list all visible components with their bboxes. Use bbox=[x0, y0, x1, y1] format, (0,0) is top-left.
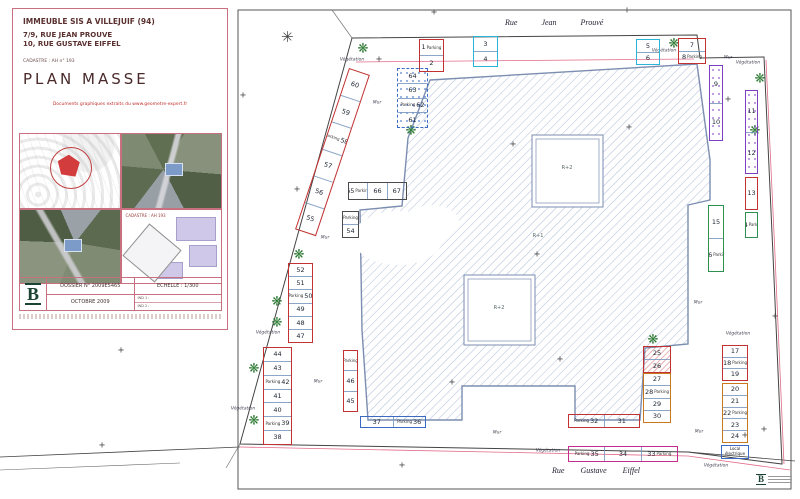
project-address-1: 7/9, RUE JEAN PROUVE bbox=[23, 31, 217, 40]
parcel-box-13: 13 bbox=[745, 177, 758, 210]
parcel-number: 62 bbox=[416, 102, 424, 109]
parcel-cell: 25 bbox=[644, 347, 670, 359]
parking-tag: Parking bbox=[687, 55, 702, 59]
parcel-number: 10 bbox=[712, 119, 720, 126]
parcel-cell: Local électrique bbox=[722, 446, 748, 458]
parcel-number: 13 bbox=[747, 190, 755, 197]
tree-icon: ❋ bbox=[358, 43, 369, 56]
parcel-cell: 31 bbox=[604, 415, 640, 427]
parcel-number: 67 bbox=[393, 188, 401, 195]
parcel-cell: 11 bbox=[746, 91, 757, 132]
parcel-number: 3 bbox=[483, 41, 487, 48]
parcel-cell: 13 bbox=[746, 178, 757, 209]
survey-cross-icon: + bbox=[431, 8, 437, 18]
plan-masse-sheet: Rue Jean Prouvé Rue Gustave Eiffel ✳ 1Pa… bbox=[0, 0, 800, 499]
survey-cross-icon: + bbox=[510, 140, 516, 150]
parcel-number: 47 bbox=[296, 333, 304, 340]
parcel-cell: 15 bbox=[709, 206, 723, 238]
parcel-box-25: 2526 bbox=[643, 346, 671, 373]
parcel-box-35: Parking353433Parking bbox=[568, 446, 678, 462]
parcel-cell: Parking36 bbox=[393, 417, 426, 427]
survey-cross-icon: + bbox=[399, 461, 405, 471]
surveyor-mini-logo: B bbox=[756, 471, 792, 488]
parcel-number: 24 bbox=[731, 433, 739, 440]
parcel-cell: Parking39 bbox=[264, 416, 291, 430]
parcel-cell: 17 bbox=[723, 346, 747, 357]
wall-label: Mur bbox=[694, 301, 703, 306]
parking-tag: Parking bbox=[355, 189, 367, 193]
street-name-rue-gustave-eiffel: Rue Gustave Eiffel bbox=[552, 466, 640, 475]
survey-cross-icon: + bbox=[99, 441, 105, 451]
parcel-cell: 21 bbox=[723, 395, 747, 407]
parcel-number: 35 bbox=[590, 451, 598, 458]
parcel-cell: 30 bbox=[644, 410, 670, 422]
parcel-cell: Parking32 bbox=[569, 415, 604, 427]
parking-tag: Parking bbox=[713, 253, 723, 257]
parcel-number: 28 bbox=[645, 389, 653, 396]
parcel-cell: Parking35 bbox=[569, 447, 604, 461]
parking-tag: Parking bbox=[654, 390, 669, 394]
parcel-number: 61 bbox=[408, 117, 416, 124]
survey-cross-icon: + bbox=[240, 91, 246, 101]
parking-tag: Parking bbox=[732, 361, 747, 365]
parcel-cell: 67 bbox=[387, 183, 406, 199]
parcel-cell: 52 bbox=[289, 264, 312, 276]
location-thumbnails: CADASTRE : AH 193 bbox=[19, 133, 222, 284]
parcel-number: 48 bbox=[296, 320, 304, 327]
parcel-number: 19 bbox=[731, 371, 739, 378]
parcel-cell: 45 bbox=[344, 391, 357, 411]
survey-cross-icon: + bbox=[624, 6, 630, 16]
survey-cross-icon: + bbox=[626, 123, 632, 133]
survey-cross-icon: + bbox=[725, 95, 731, 105]
parcel-number: 18 bbox=[723, 360, 731, 367]
thumbnail-aerial-photo-1 bbox=[121, 133, 223, 209]
building-level-label: R+2 bbox=[494, 305, 505, 311]
parcel-box-11: 1112 bbox=[745, 90, 758, 174]
thumbnail-aerial-photo-2 bbox=[19, 209, 121, 285]
parcel-cell: 14Parking bbox=[746, 213, 757, 237]
tree-icon: ❋ bbox=[249, 363, 260, 376]
revision-ind-2: IND 2 : bbox=[135, 303, 222, 310]
project-title: IMMEUBLE SIS A VILLEJUIF (94) bbox=[23, 17, 217, 26]
parcel-cell: 46 bbox=[344, 370, 357, 390]
logo-monogram: B bbox=[25, 283, 41, 305]
parcel-number: 26 bbox=[653, 363, 661, 370]
wall-label: Mur bbox=[724, 56, 733, 61]
title-block: IMMEUBLE SIS A VILLEJUIF (94) 7/9, RUE J… bbox=[12, 8, 228, 330]
parcel-box-14: 14Parking bbox=[745, 212, 758, 238]
parcel-cell: 40 bbox=[264, 402, 291, 416]
parcel-box-label: Local électrique bbox=[721, 445, 749, 459]
wall-label: Mur bbox=[321, 236, 330, 241]
parking-tag: Parking bbox=[325, 133, 340, 142]
parcel-number: 11 bbox=[747, 108, 755, 115]
parcel-number: 40 bbox=[273, 407, 281, 414]
date-value: OCTOBRE 2009 bbox=[47, 295, 135, 311]
logo-monogram: B bbox=[756, 474, 766, 485]
parcel-box-9: 910 bbox=[709, 65, 723, 141]
parcel-cell: 37 bbox=[361, 417, 393, 427]
parcel-number: 16 bbox=[709, 252, 712, 259]
parking-tag: Parking bbox=[289, 294, 303, 298]
parcel-number: 23 bbox=[731, 422, 739, 429]
parcel-box-17: 1718Parking19 bbox=[722, 345, 748, 381]
vegetation-label: Végétation bbox=[340, 58, 364, 63]
documents-note: Documents graphiques extraits du www.geo… bbox=[23, 102, 217, 107]
scale-value: ECHELLE : 1/300 bbox=[135, 278, 222, 294]
parcel-number: 21 bbox=[731, 398, 739, 405]
parcel-number: 49 bbox=[296, 306, 304, 313]
parcel-box-27: 2728Parking2930 bbox=[643, 373, 671, 423]
parcel-cell: Parking50 bbox=[289, 289, 312, 302]
parcel-number: 39 bbox=[281, 420, 289, 427]
parcel-number: 33 bbox=[647, 451, 655, 458]
title-block-footnote bbox=[19, 314, 222, 319]
parcel-cell: 54 bbox=[343, 224, 358, 237]
parcel-number: 55 bbox=[305, 214, 315, 223]
wall-label: Mur bbox=[695, 430, 704, 435]
tree-icon: ❋ bbox=[249, 415, 260, 428]
survey-cross-icon: + bbox=[557, 355, 563, 365]
parcel-number: 14 bbox=[746, 222, 748, 229]
dossier-number: DOSSIER N° 2009E5465 bbox=[47, 278, 135, 294]
logo-caption-lines bbox=[768, 476, 792, 483]
parcel-number: 31 bbox=[618, 418, 626, 425]
parcel-cell: 4 bbox=[474, 51, 497, 66]
parcel-cell: 65Parking bbox=[349, 183, 367, 199]
parcel-cell: 6 bbox=[637, 52, 659, 65]
parcel-cell: 43 bbox=[264, 361, 291, 375]
parcel-cell: Parking42 bbox=[264, 375, 291, 389]
parcel-cell: 66 bbox=[367, 183, 386, 199]
parcel-box-32: Parking3231 bbox=[568, 414, 640, 428]
parcel-box-64: 6463Parking6261 bbox=[397, 68, 428, 128]
building-level-label: R+2 bbox=[562, 165, 573, 171]
survey-cross-icon: + bbox=[761, 425, 767, 435]
tree-icon: ❋ bbox=[755, 73, 766, 86]
parcel-number: 8 bbox=[682, 54, 686, 61]
parcel-cell: 61 bbox=[398, 112, 427, 127]
parcel-cell: 48 bbox=[289, 316, 312, 329]
parking-tag: Parking bbox=[749, 223, 757, 227]
building-level-label: R+1 bbox=[533, 233, 544, 239]
parcel-box-46: Parking4645 bbox=[343, 350, 358, 412]
parcel-cell: 16Parking bbox=[709, 238, 723, 271]
parcel-cell: 7 bbox=[679, 39, 705, 51]
parcel-number: 38 bbox=[273, 434, 281, 441]
parcel-number: 5 bbox=[646, 43, 650, 50]
parcel-cell: 33Parking bbox=[641, 447, 677, 461]
survey-cross-icon: + bbox=[534, 250, 540, 260]
parcel-number: 60 bbox=[350, 81, 360, 90]
parcel-number: 41 bbox=[273, 393, 281, 400]
parcel-number: 32 bbox=[590, 418, 598, 425]
parcel-number: 56 bbox=[314, 188, 324, 197]
parking-tag: Parking bbox=[265, 422, 280, 426]
drawing-title: PLAN MASSE bbox=[23, 70, 217, 88]
parcel-number: 36 bbox=[413, 419, 421, 426]
parcel-number: 37 bbox=[373, 419, 381, 426]
revision-index: IND 1 : IND 2 : bbox=[135, 295, 222, 311]
wall-label: Mur bbox=[314, 380, 323, 385]
parcel-box-54: Parking54 bbox=[342, 211, 359, 238]
vegetation-label: Végétation bbox=[726, 332, 750, 337]
revision-ind-1: IND 1 : bbox=[135, 295, 222, 303]
project-address-2: 10, RUE GUSTAVE EIFFEL bbox=[23, 40, 217, 49]
parcel-cell: 24 bbox=[723, 430, 747, 442]
parcel-number: 45 bbox=[346, 398, 354, 405]
parcel-cell: 28Parking bbox=[644, 385, 670, 397]
parcel-cell: 29 bbox=[644, 398, 670, 410]
parcel-cell: 34 bbox=[604, 447, 640, 461]
parcel-cell: Parking bbox=[343, 212, 358, 224]
parcel-box-52: 5251Parking50494847 bbox=[288, 263, 313, 343]
parcel-number: 59 bbox=[341, 108, 351, 117]
parcel-number: 4 bbox=[483, 56, 487, 63]
parcel-cell: 49 bbox=[289, 303, 312, 316]
parcel-box-7: 78Parking bbox=[678, 38, 706, 64]
street-name-rue-jean-prouve: Rue Jean Prouvé bbox=[505, 18, 603, 27]
parcel-box-37: 37Parking36 bbox=[360, 416, 426, 428]
parcel-number: 6 bbox=[646, 55, 650, 62]
plan-building-shape bbox=[189, 245, 217, 268]
parking-tag: Parking bbox=[574, 419, 589, 423]
parking-tag: Parking bbox=[657, 452, 672, 456]
survey-cross-icon: + bbox=[376, 55, 382, 65]
parcel-number: 22 bbox=[723, 410, 731, 417]
parcel-cell: 22Parking bbox=[723, 407, 747, 419]
survey-cross-icon: + bbox=[294, 185, 300, 195]
parcel-cell: 26 bbox=[644, 359, 670, 372]
vegetation-label: Végétation bbox=[536, 449, 560, 454]
parcel-box-3: 34 bbox=[473, 36, 498, 67]
parcel-cell: 12 bbox=[746, 132, 757, 174]
parcel-cell: 9 bbox=[710, 66, 722, 103]
parcel-number: 46 bbox=[346, 378, 354, 385]
parking-tag: Parking bbox=[732, 411, 747, 415]
parcel-cell: 44 bbox=[264, 348, 291, 361]
parking-tag: Parking bbox=[343, 216, 358, 220]
parcel-cell: 38 bbox=[264, 430, 291, 444]
parking-tag: Parking bbox=[344, 359, 357, 363]
aerial-building-roof bbox=[165, 163, 183, 176]
wall-label: Mur bbox=[373, 101, 382, 106]
vegetation-label: Végétation bbox=[704, 464, 728, 469]
tree-icon: ❋ bbox=[294, 249, 305, 262]
parcel-number: 57 bbox=[323, 161, 333, 170]
parcel-number: 63 bbox=[408, 87, 416, 94]
parcel-cell: 20 bbox=[723, 384, 747, 395]
parcel-number: 34 bbox=[619, 451, 627, 458]
parcel-cell: 1Parking bbox=[420, 40, 443, 55]
parcel-number: 44 bbox=[273, 351, 281, 358]
parcel-cell: 19 bbox=[723, 368, 747, 380]
parcel-number: 25 bbox=[653, 350, 661, 357]
wall-label: Mur bbox=[493, 431, 502, 436]
survey-cross-icon: + bbox=[772, 312, 778, 322]
title-block-header: IMMEUBLE SIS A VILLEJUIF (94) 7/9, RUE J… bbox=[13, 9, 227, 107]
parcel-number: 7 bbox=[690, 42, 694, 49]
parking-tag: Parking bbox=[400, 103, 415, 107]
tree-icon: ❋ bbox=[272, 317, 283, 330]
parcel-cell: 18Parking bbox=[723, 357, 747, 369]
parcel-box-44: 4443Parking424140Parking3938 bbox=[263, 347, 292, 445]
parcel-cell: 8Parking bbox=[679, 51, 705, 64]
parcel-cell: Parking62 bbox=[398, 98, 427, 113]
parcel-number: 65 bbox=[349, 188, 354, 195]
parcel-number: 27 bbox=[653, 376, 661, 383]
parcel-cell: Parking bbox=[344, 351, 357, 370]
parcel-cell: 41 bbox=[264, 389, 291, 403]
parcel-number: 42 bbox=[281, 379, 289, 386]
north-compass-icon: ✳ bbox=[281, 30, 294, 45]
parcel-cell: 63 bbox=[398, 83, 427, 98]
surveyor-logo: B bbox=[20, 278, 47, 310]
aerial-building-roof bbox=[64, 239, 82, 252]
parcel-number: 12 bbox=[747, 150, 755, 157]
parcel-number: 64 bbox=[408, 73, 416, 80]
parcel-box-65: 65Parking6667 bbox=[348, 182, 407, 200]
parcel-cell: 3 bbox=[474, 37, 497, 51]
parcel-number: 1 bbox=[422, 44, 426, 51]
parcel-cell: 5 bbox=[637, 40, 659, 52]
parcel-number: 17 bbox=[731, 348, 739, 355]
parking-tag: Parking bbox=[265, 380, 280, 384]
tree-icon: ❋ bbox=[648, 334, 659, 347]
vegetation-label: Végétation bbox=[736, 61, 760, 66]
parcel-number: 54 bbox=[346, 228, 354, 235]
parcel-number: 51 bbox=[296, 280, 304, 287]
parcel-cell: 64 bbox=[398, 69, 427, 83]
parcel-number: 66 bbox=[373, 188, 381, 195]
parcel-number: 2 bbox=[429, 60, 433, 67]
thumbnail-caption: CADASTRE : AH 193 bbox=[126, 213, 166, 218]
parcel-box-20: 202122Parking2324 bbox=[722, 383, 748, 443]
parking-tag: Parking bbox=[575, 452, 590, 456]
parking-tag: Parking bbox=[427, 46, 442, 50]
parcel-number: 9 bbox=[714, 81, 718, 88]
parcel-number: 52 bbox=[296, 267, 304, 274]
parcel-cell: 23 bbox=[723, 418, 747, 430]
plan-building-shape bbox=[176, 217, 216, 241]
survey-cross-icon: + bbox=[118, 346, 124, 356]
vegetation-label: Végétation bbox=[231, 407, 255, 412]
survey-cross-icon: + bbox=[449, 378, 455, 388]
parcel-number: 20 bbox=[731, 386, 739, 393]
parcel-cell: 10 bbox=[710, 103, 722, 141]
parcel-number: 43 bbox=[273, 365, 281, 372]
parcel-number: 30 bbox=[653, 413, 661, 420]
parcel-box-5: 56 bbox=[636, 39, 660, 65]
parcel-number: 29 bbox=[653, 401, 661, 408]
parcel-cell: 47 bbox=[289, 329, 312, 342]
parcel-number: 15 bbox=[712, 219, 720, 226]
parcel-box-15: 1516Parking bbox=[708, 205, 724, 272]
thumbnail-cadastral-map bbox=[19, 133, 121, 209]
title-block-table: B DOSSIER N° 2009E5465 ECHELLE : 1/300 O… bbox=[19, 277, 222, 311]
parcel-cell: 27 bbox=[644, 374, 670, 385]
parcel-number: 50 bbox=[304, 293, 312, 300]
cadastre-reference: CADASTRE : AH n° 193 bbox=[23, 59, 217, 64]
parking-tag: Parking bbox=[397, 420, 412, 424]
vegetation-label: Végétation bbox=[256, 331, 280, 336]
parcel-label: Local électrique bbox=[722, 447, 748, 456]
tree-icon: ❋ bbox=[272, 296, 283, 309]
parcel-cell: 51 bbox=[289, 276, 312, 289]
thumbnail-cadastre-plan: CADASTRE : AH 193 bbox=[121, 209, 223, 285]
